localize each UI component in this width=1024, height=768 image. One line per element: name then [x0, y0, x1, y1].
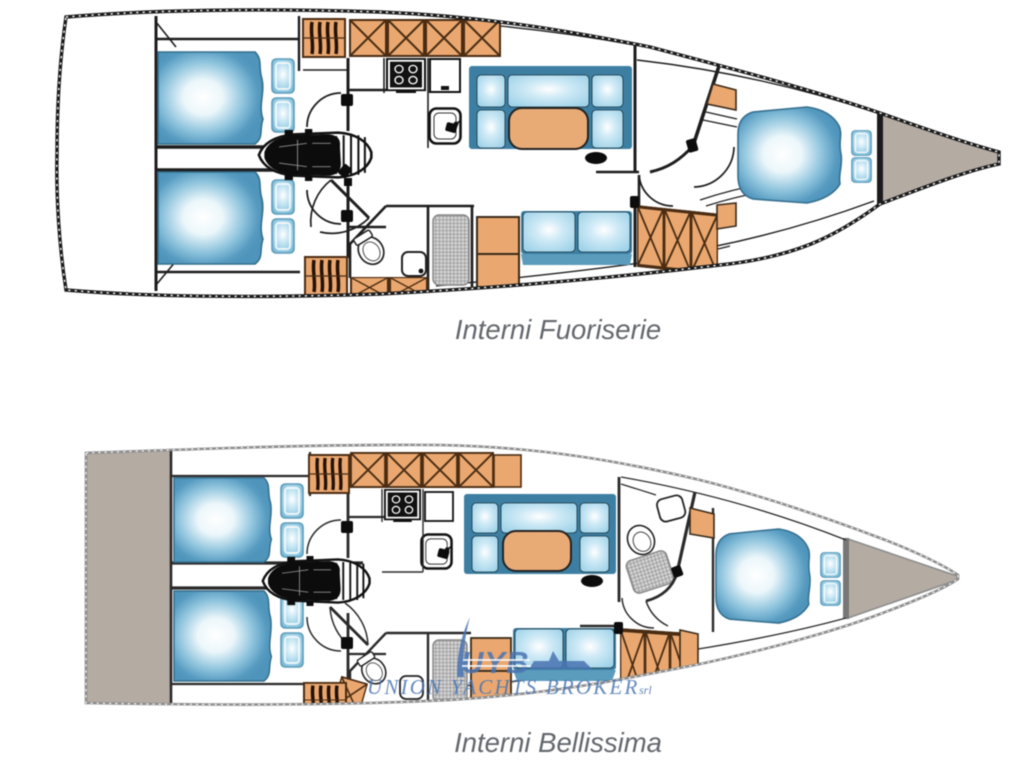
svg-text:Interni Fuoriserie: Interni Fuoriserie — [455, 314, 661, 345]
svg-text:Interni Bellissima: Interni Bellissima — [454, 727, 662, 758]
svg-text:UNION YACHTS BROKER: UNION YACHTS BROKER — [367, 675, 640, 699]
svg-text:srl: srl — [639, 683, 652, 697]
